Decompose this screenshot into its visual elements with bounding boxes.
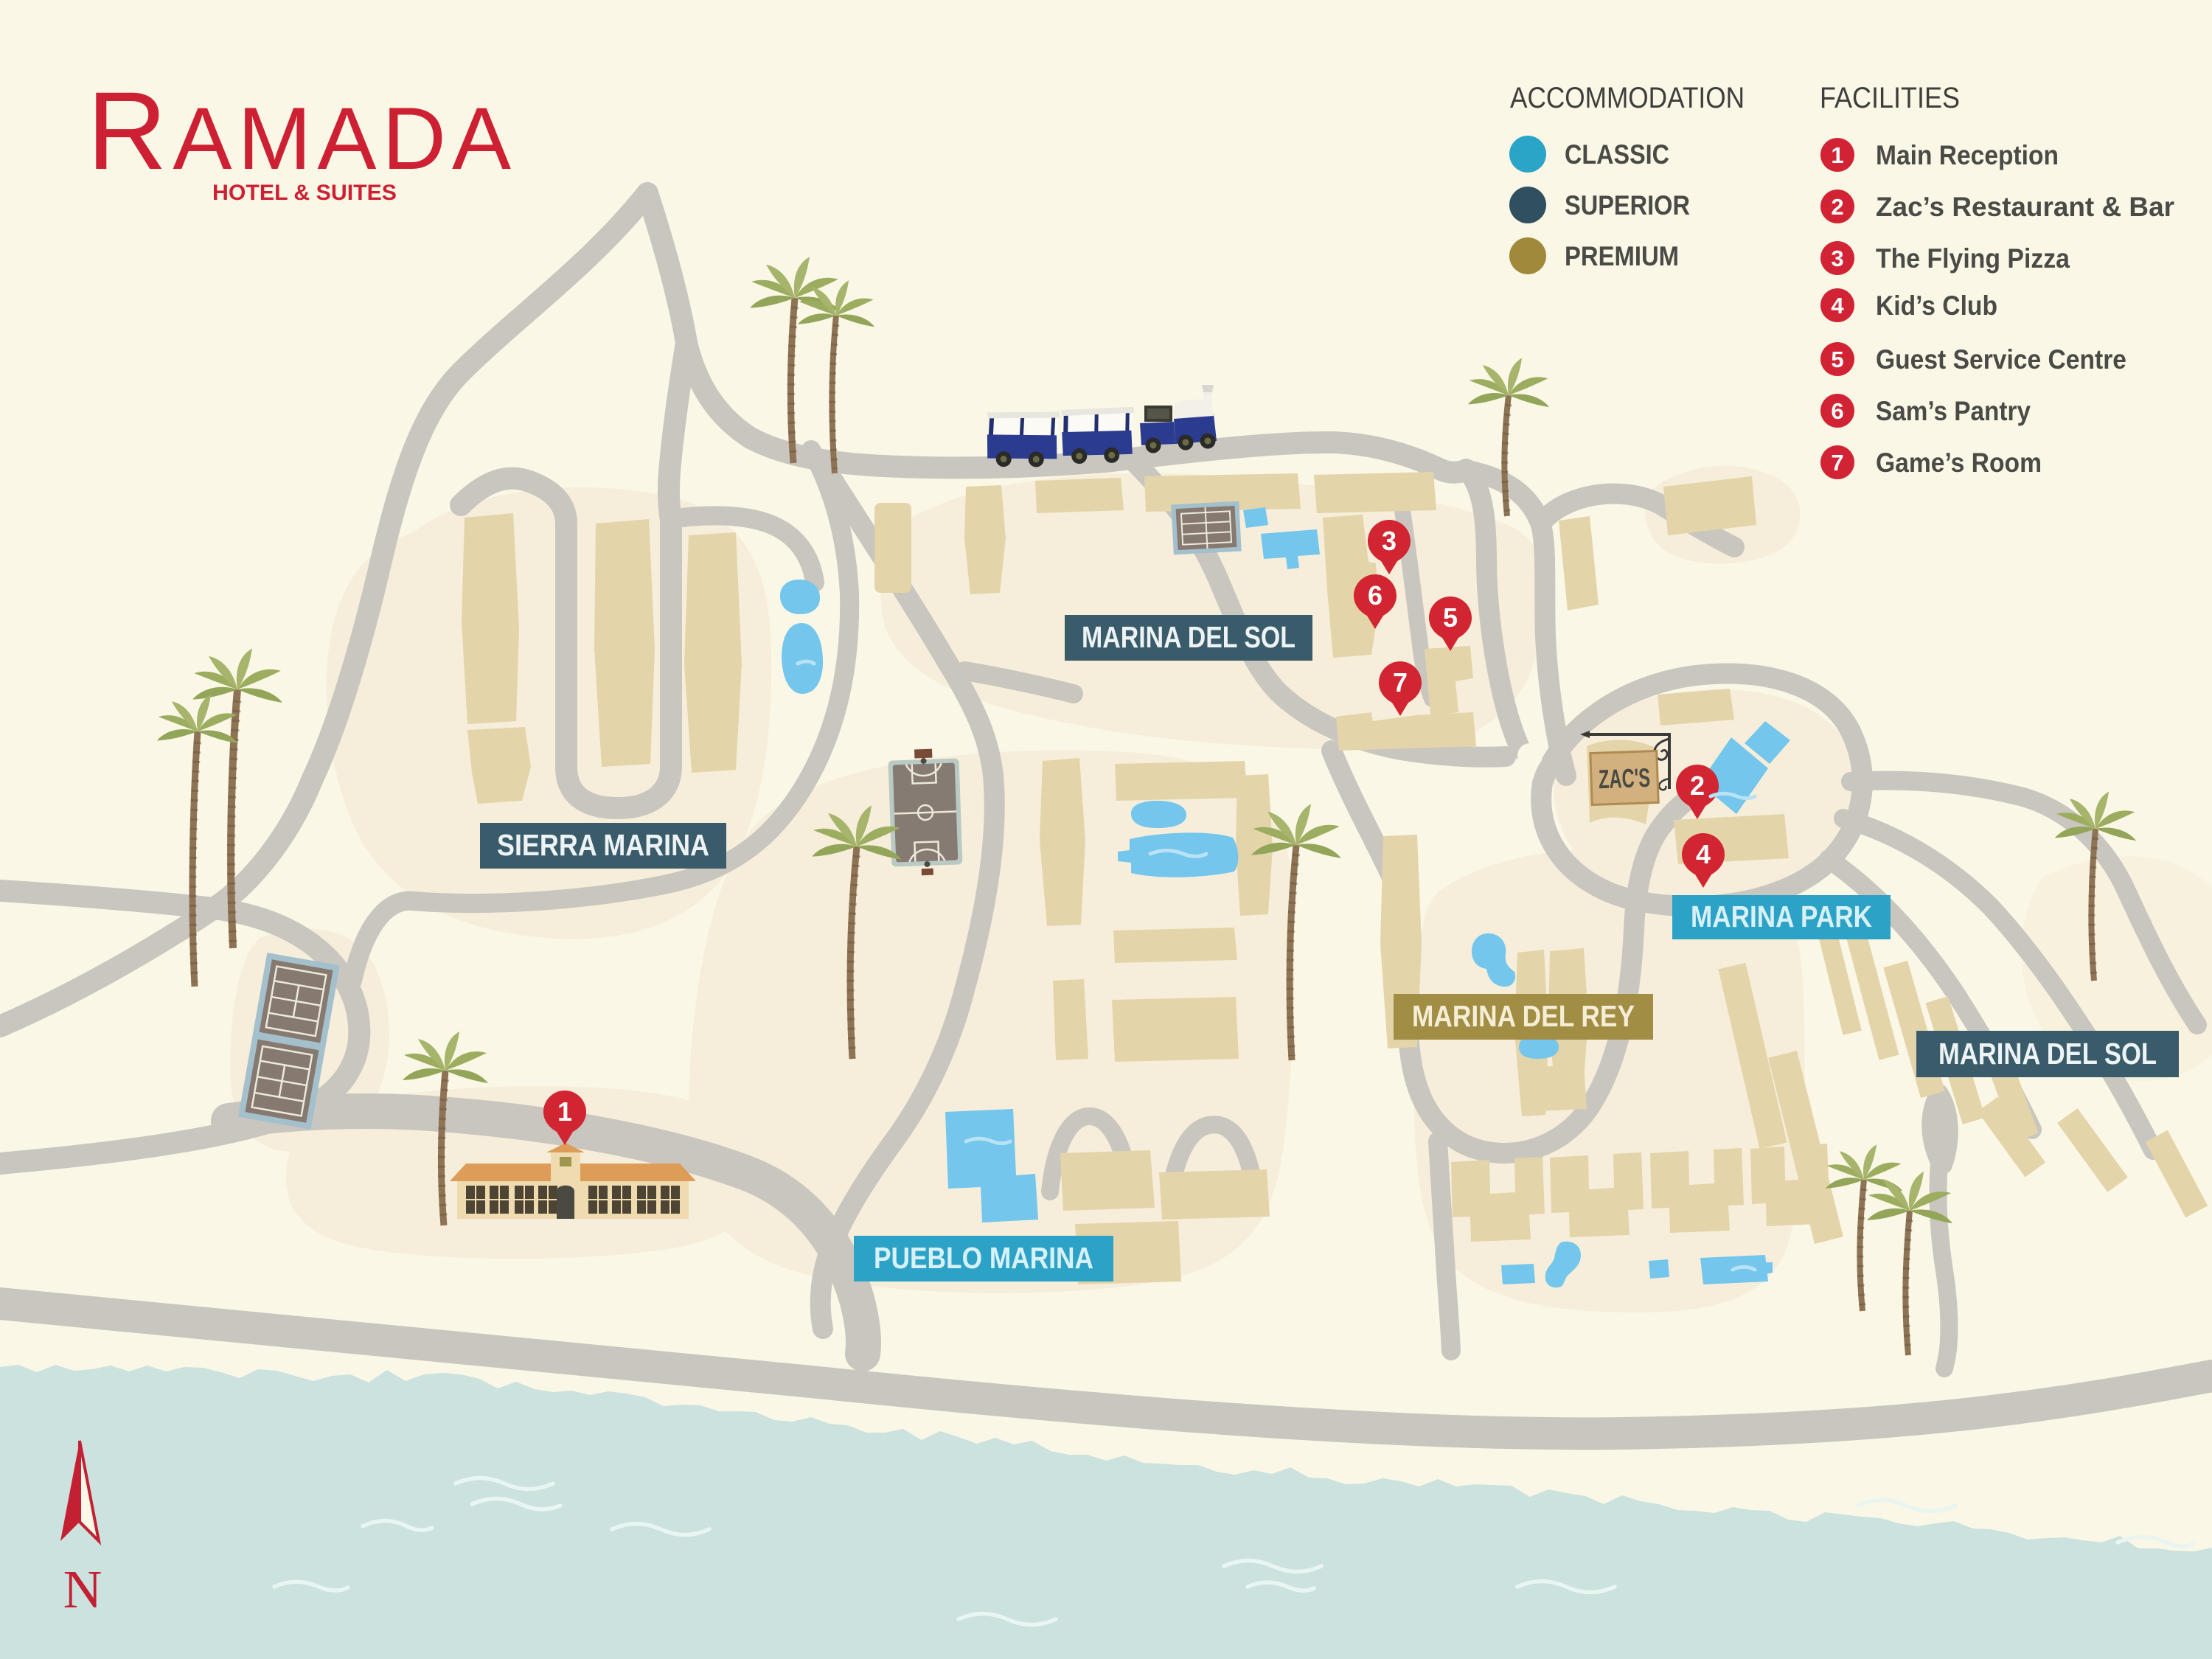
svg-text:ZAC'S: ZAC'S — [1598, 762, 1650, 794]
svg-text:HOTEL & SUITES: HOTEL & SUITES — [212, 181, 397, 205]
svg-text:FACILITIES: FACILITIES — [1820, 82, 1960, 114]
svg-text:MARINA DEL REY: MARINA DEL REY — [1412, 999, 1635, 1033]
svg-text:MARINA DEL SOL: MARINA DEL SOL — [1938, 1037, 2157, 1071]
svg-text:SUPERIOR: SUPERIOR — [1565, 190, 1690, 220]
svg-text:2: 2 — [1831, 194, 1843, 220]
svg-text:1: 1 — [1831, 142, 1843, 168]
svg-text:ACCOMMODATION: ACCOMMODATION — [1510, 82, 1745, 114]
svg-text:1: 1 — [557, 1096, 572, 1127]
svg-text:Guest Service Centre: Guest Service Centre — [1876, 344, 2126, 375]
svg-text:Main Reception: Main Reception — [1876, 140, 2059, 170]
svg-text:3: 3 — [1831, 246, 1843, 271]
svg-text:PREMIUM: PREMIUM — [1565, 241, 1679, 271]
svg-text:4: 4 — [1831, 293, 1844, 319]
svg-text:6: 6 — [1368, 580, 1382, 611]
svg-text:PUEBLO MARINA: PUEBLO MARINA — [874, 1241, 1093, 1275]
svg-text:Kid’s Club: Kid’s Club — [1876, 291, 1997, 321]
svg-text:6: 6 — [1831, 398, 1843, 424]
svg-text:7: 7 — [1831, 450, 1843, 476]
svg-text:5: 5 — [1831, 347, 1843, 372]
svg-text:MARINA DEL SOL: MARINA DEL SOL — [1082, 620, 1295, 654]
svg-text:2: 2 — [1690, 771, 1705, 801]
svg-text:MARINA PARK: MARINA PARK — [1691, 900, 1872, 933]
svg-text:5: 5 — [1443, 602, 1458, 633]
svg-text:SIERRA MARINA: SIERRA MARINA — [497, 828, 709, 862]
svg-text:Zac’s Restaurant & Bar: Zac’s Restaurant & Bar — [1876, 192, 2174, 222]
svg-text:7: 7 — [1393, 667, 1408, 698]
svg-text:4: 4 — [1696, 839, 1711, 869]
svg-text:Game’s Room: Game’s Room — [1876, 448, 2042, 478]
svg-text:The Flying Pizza: The Flying Pizza — [1876, 243, 2070, 274]
svg-text:N: N — [63, 1559, 102, 1619]
svg-text:CLASSIC: CLASSIC — [1565, 139, 1669, 170]
svg-text:3: 3 — [1382, 526, 1397, 556]
svg-text:Sam’s Pantry: Sam’s Pantry — [1876, 396, 2031, 426]
